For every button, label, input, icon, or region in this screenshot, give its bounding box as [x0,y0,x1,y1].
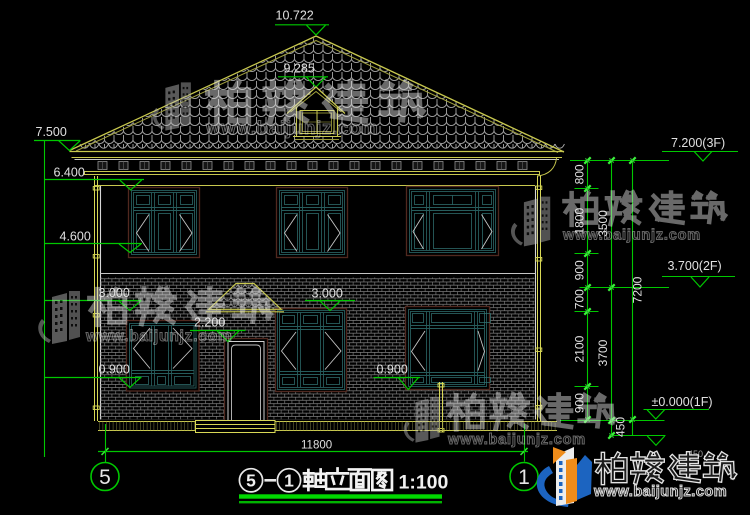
svg-text:1:100: 1:100 [399,472,449,494]
svg-text:www.baijunjz.com: www.baijunjz.com [447,432,586,448]
svg-text:3.700(2F): 3.700(2F) [668,259,722,273]
svg-text:700: 700 [573,289,587,309]
svg-text:10.722: 10.722 [276,9,314,23]
svg-text:11800: 11800 [301,440,332,452]
svg-text:7.200(3F): 7.200(3F) [671,136,725,150]
svg-text:1: 1 [518,466,530,489]
svg-text:www.baijunjz.com: www.baijunjz.com [85,328,233,345]
svg-text:±0.000(1F): ±0.000(1F) [652,395,713,409]
svg-text:3700: 3700 [596,339,610,366]
svg-text:1: 1 [284,471,294,491]
svg-text:5: 5 [99,466,111,489]
svg-text:www.baijunjz.com: www.baijunjz.com [562,228,701,244]
svg-text:www.baijunjz.com: www.baijunjz.com [593,484,727,500]
svg-text:5: 5 [246,471,256,491]
svg-text:0.900: 0.900 [377,363,408,377]
svg-text:800: 800 [573,164,587,184]
svg-text:6.400: 6.400 [54,166,85,180]
svg-text:7.500: 7.500 [36,125,67,139]
svg-text:9.285: 9.285 [284,62,315,76]
svg-text:4.600: 4.600 [60,230,91,244]
svg-text:3.000: 3.000 [312,287,343,301]
svg-text:www.baijunjz.com: www.baijunjz.com [205,117,378,138]
svg-text:7200: 7200 [631,276,645,303]
svg-text:0.900: 0.900 [99,363,130,377]
svg-text:2100: 2100 [573,335,587,362]
svg-text:900: 900 [573,260,587,280]
